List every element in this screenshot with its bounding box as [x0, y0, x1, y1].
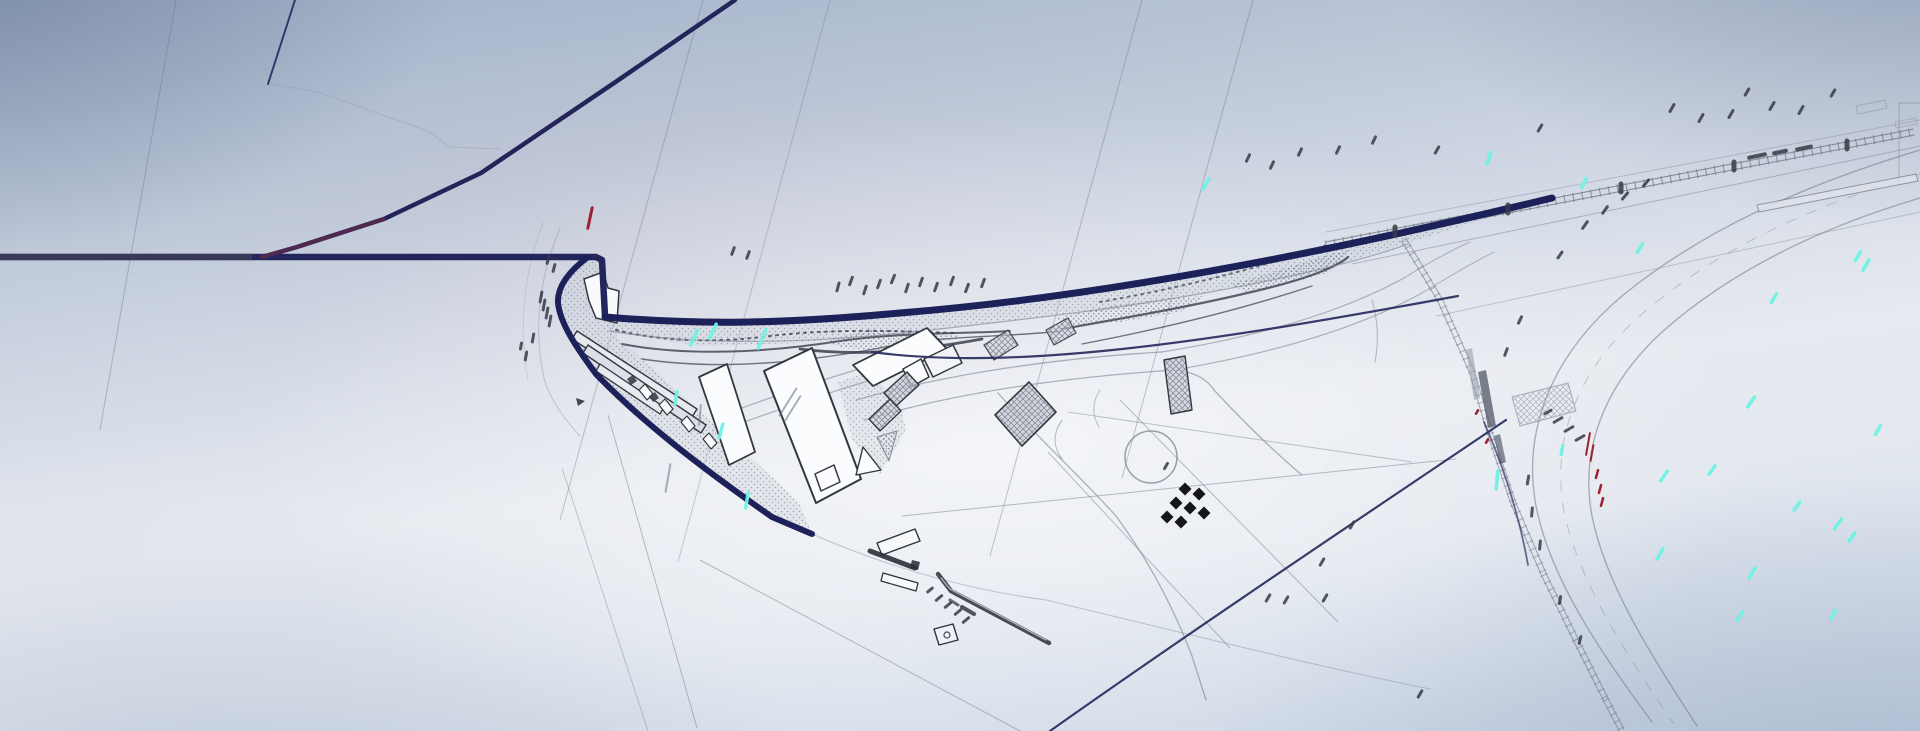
survey-marks-red-item — [1586, 433, 1590, 455]
diamond-grid-item — [1170, 497, 1183, 510]
rail-platforms-item — [1478, 370, 1496, 428]
railway — [1325, 128, 1914, 731]
roads-item — [1372, 300, 1377, 362]
tree-ticks-item — [982, 279, 985, 287]
rail-platforms-item — [1512, 383, 1576, 426]
roads-item — [1094, 390, 1100, 427]
survey-marks-cyan-item — [1794, 502, 1800, 510]
parcel-lines-item — [100, 0, 176, 430]
tree-ticks-item — [1622, 193, 1627, 199]
tree-ticks-item — [936, 596, 941, 600]
tree-ticks-item — [892, 275, 895, 282]
railway-item — [1406, 239, 1624, 730]
tree-ticks-item — [1554, 418, 1562, 423]
tree-ticks-item — [1729, 111, 1733, 118]
survey-marks-cyan-item — [1772, 294, 1777, 303]
tree-ticks-item — [732, 248, 734, 255]
parcel-lines-item — [1068, 412, 1412, 462]
survey-marks-cyan-item — [1863, 260, 1869, 270]
tree-ticks-item — [1558, 252, 1562, 258]
circle-feature-item — [1125, 431, 1177, 483]
tree-ticks-item — [1323, 595, 1327, 601]
tree-ticks-item — [1320, 559, 1324, 565]
tree-ticks-item — [1579, 637, 1581, 644]
tree-ticks-item — [878, 280, 881, 288]
site-plan-canvas — [0, 0, 1920, 731]
roads-item — [1174, 370, 1302, 475]
survey-marks-cyan-item — [1657, 549, 1663, 559]
parcel-lines-item — [608, 415, 697, 728]
parcel-lines-item — [562, 468, 648, 731]
tree-ticks-item — [1532, 508, 1533, 516]
survey-marks-cyan-item — [1638, 244, 1643, 253]
parcel-lines-item — [902, 459, 1456, 516]
buildings-item — [1164, 356, 1192, 414]
tree-ticks-item — [1284, 597, 1288, 603]
diamond-grid — [1161, 483, 1211, 529]
boundary-item — [262, 219, 384, 257]
parcel-lines-item — [1120, 400, 1338, 622]
survey-marks-red-item — [1596, 470, 1598, 478]
tree-ticks-item — [553, 265, 555, 272]
tree-ticks-item — [966, 284, 969, 292]
annotation-micro-text-item — [666, 464, 671, 492]
tree-ticks-item — [1266, 595, 1270, 601]
tree-ticks-item — [951, 277, 954, 285]
tree-ticks-item — [1373, 137, 1376, 143]
survey-marks-red-item — [1599, 485, 1601, 493]
tree-ticks-item — [1559, 597, 1560, 604]
tree-ticks-item — [920, 278, 923, 286]
rail-platforms-item — [1856, 100, 1887, 114]
roads-item — [1533, 150, 1920, 722]
tree-ticks-item — [906, 284, 908, 292]
tree-ticks-item — [850, 277, 853, 285]
rail-platforms-item — [1466, 348, 1480, 400]
tree-ticks-item — [1527, 476, 1528, 484]
tree-ticks-item — [1670, 105, 1674, 112]
tree-ticks-item — [549, 316, 551, 326]
survey-marks-cyan-item — [1561, 446, 1563, 455]
survey-marks-cyan-item — [1487, 152, 1491, 163]
tree-ticks-item — [547, 257, 549, 264]
tree-ticks-item — [1435, 147, 1439, 153]
buildings-item — [995, 382, 1056, 446]
survey-marks-cyan-item — [1738, 612, 1743, 621]
survey-marks-cyan-item — [1661, 471, 1668, 481]
tree-ticks-item — [1165, 463, 1168, 468]
parcel-lines-item — [700, 560, 1020, 731]
tree-ticks-item — [1699, 115, 1703, 122]
tree-ticks-item — [1774, 151, 1786, 153]
survey-marks-cyan-item — [1709, 466, 1715, 474]
roads-item — [1422, 252, 1494, 293]
boundary-item — [268, 0, 295, 84]
buildings-item — [877, 529, 920, 555]
tree-ticks-item — [747, 252, 749, 259]
tree-ticks-item — [543, 300, 545, 310]
tree-ticks-item — [945, 603, 950, 607]
diamond-grid-item — [1179, 483, 1192, 496]
tree-ticks-item — [935, 283, 938, 291]
parcel-lines-item — [1326, 120, 1920, 232]
tree-ticks-item — [1565, 427, 1573, 432]
roads-item — [1589, 198, 1920, 726]
tree-ticks-item — [1505, 349, 1507, 356]
landscape-band — [558, 198, 1552, 534]
survey-marks-cyan-item — [1856, 252, 1861, 261]
faint-curves-item — [268, 84, 500, 149]
survey-marks-cyan-item — [1876, 426, 1881, 435]
survey-marks-cyan-item — [675, 392, 677, 405]
tree-ticks-item — [1831, 90, 1835, 96]
tree-ticks-item — [1337, 147, 1340, 153]
survey-marks-cyan-item — [1831, 611, 1836, 620]
tree-ticks-item — [1603, 207, 1608, 214]
survey-marks-cyan-item — [1835, 519, 1842, 529]
tree-ticks-item — [1583, 222, 1588, 229]
buildings-item — [934, 624, 958, 645]
survey-marks-cyan-item — [1849, 533, 1855, 541]
buildings-item — [764, 348, 861, 503]
tree-ticks-item — [1745, 89, 1749, 95]
tree-ticks-item — [1540, 541, 1541, 549]
diamond-grid-item — [1193, 488, 1206, 501]
faint-curves-item — [812, 534, 1430, 689]
tree-ticks-item — [1576, 436, 1584, 441]
survey-marks-red-item — [1476, 410, 1478, 413]
tree-ticks-item — [1770, 103, 1774, 110]
diamond-grid-item — [1184, 502, 1197, 515]
tree-ticks-item — [928, 588, 933, 592]
diamond-grid-item — [1175, 516, 1188, 529]
tree-ticks-item — [546, 308, 548, 318]
survey-marks-red-item — [1591, 445, 1594, 461]
tree-ticks-item — [963, 618, 968, 622]
diamond-grid-item — [1198, 507, 1211, 520]
survey-marks-cyan-item — [1748, 397, 1755, 407]
tree-ticks-item — [1247, 155, 1250, 161]
parcel-lines-item — [990, 0, 1142, 556]
survey-marks-cyan-item — [1496, 471, 1498, 489]
tree-ticks-item — [1797, 147, 1811, 150]
south-walls-item — [962, 607, 974, 614]
tree-ticks-item — [1519, 317, 1522, 323]
boundary-item — [1050, 420, 1506, 731]
rail-platforms — [1466, 100, 1918, 464]
tree-ticks-item — [525, 352, 526, 360]
tree-ticks-item — [1271, 162, 1274, 168]
boundary-item — [262, 0, 735, 257]
parcel-lines-item — [1352, 146, 1920, 264]
tree-ticks-item — [1418, 691, 1422, 697]
tree-ticks-item — [540, 292, 542, 302]
tree-ticks-item — [837, 283, 839, 291]
buildings-item — [576, 398, 585, 406]
survey-marks-cyan-item — [1582, 178, 1586, 187]
survey-marks-red-item — [1601, 498, 1603, 506]
tree-ticks-item — [1299, 149, 1302, 155]
tree-ticks-item — [1749, 154, 1765, 157]
buildings-item — [881, 573, 918, 591]
survey-marks-red-item — [588, 208, 592, 229]
parcel-lines-item — [1436, 212, 1920, 316]
tree-ticks-item — [532, 334, 533, 342]
tree-ticks-item — [1538, 125, 1542, 131]
diamond-grid-item — [1161, 511, 1174, 524]
tree-ticks-item — [864, 286, 866, 294]
tree-ticks-item — [955, 610, 960, 614]
survey-marks-cyan-item — [1749, 568, 1755, 578]
tree-ticks-item — [520, 343, 521, 349]
roads-item — [1561, 174, 1920, 724]
roads-item — [1404, 242, 1470, 278]
survey-marks-red-item — [1486, 439, 1488, 442]
site-plan-viewport — [0, 0, 1920, 731]
tree-ticks-item — [1799, 107, 1803, 114]
tree-ticks-item — [1350, 522, 1354, 528]
roads-item — [1174, 293, 1422, 370]
